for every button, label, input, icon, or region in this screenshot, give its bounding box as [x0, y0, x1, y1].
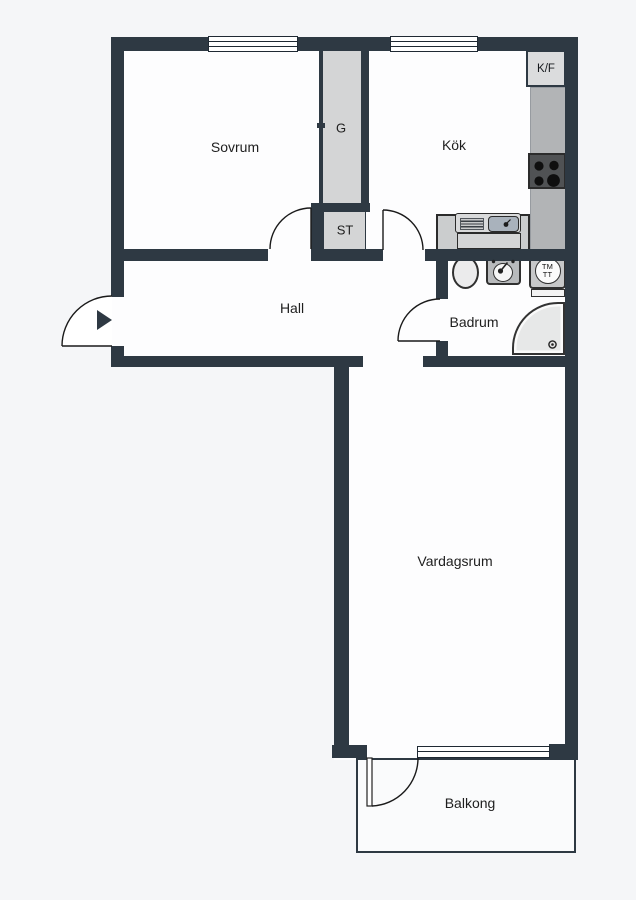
drainboard-icon — [460, 218, 484, 230]
wall-hall-bottom — [111, 356, 363, 367]
wall-bathroom-left-lower — [436, 341, 448, 367]
wall-right — [565, 37, 578, 760]
room-label-kok: Kök — [442, 137, 466, 153]
window-livingroom-icon — [417, 746, 550, 758]
window-bedroom-icon — [208, 36, 298, 52]
entry-door-swing-area — [62, 296, 112, 346]
wall-bedroom-hall — [111, 249, 268, 261]
kitchen-sink-basin-icon — [488, 216, 519, 232]
wall-g-door-tick — [317, 123, 325, 128]
fridge-freezer-label: K/F — [537, 63, 555, 75]
room-label-balkong: Balkong — [445, 795, 496, 811]
closet-label-g: G — [336, 121, 346, 136]
wall-bathroom-left-upper — [436, 250, 448, 299]
stove-icon — [528, 153, 566, 189]
wall-livingroom-left — [334, 356, 349, 746]
entry-door-arc — [62, 296, 112, 346]
dryer-label: TT — [543, 271, 553, 280]
wall-balcony-stub-left — [332, 745, 367, 758]
wall-g-right — [361, 51, 369, 206]
washing-machine-drawer — [531, 289, 565, 297]
floorplan-canvas: K/F TM TT — [0, 0, 636, 900]
room-label-sovrum: Sovrum — [211, 139, 259, 155]
window-kitchen-icon — [390, 36, 478, 52]
wall-top — [111, 37, 578, 51]
kitchen-counter-front — [457, 233, 521, 249]
entry-arrow-icon — [97, 310, 112, 330]
closet-label-st: ST — [337, 223, 354, 238]
wall-st-left — [311, 204, 324, 261]
fridge-freezer-box: K/F — [526, 50, 566, 87]
washing-machine-door: TM TT — [535, 258, 561, 284]
room-label-vardagsrum: Vardagsrum — [417, 553, 492, 569]
room-label-hall: Hall — [280, 300, 304, 316]
room-label-badrum: Badrum — [449, 314, 498, 330]
wall-balcony-stub-right — [549, 744, 578, 760]
washbasin-bowl — [493, 263, 513, 282]
